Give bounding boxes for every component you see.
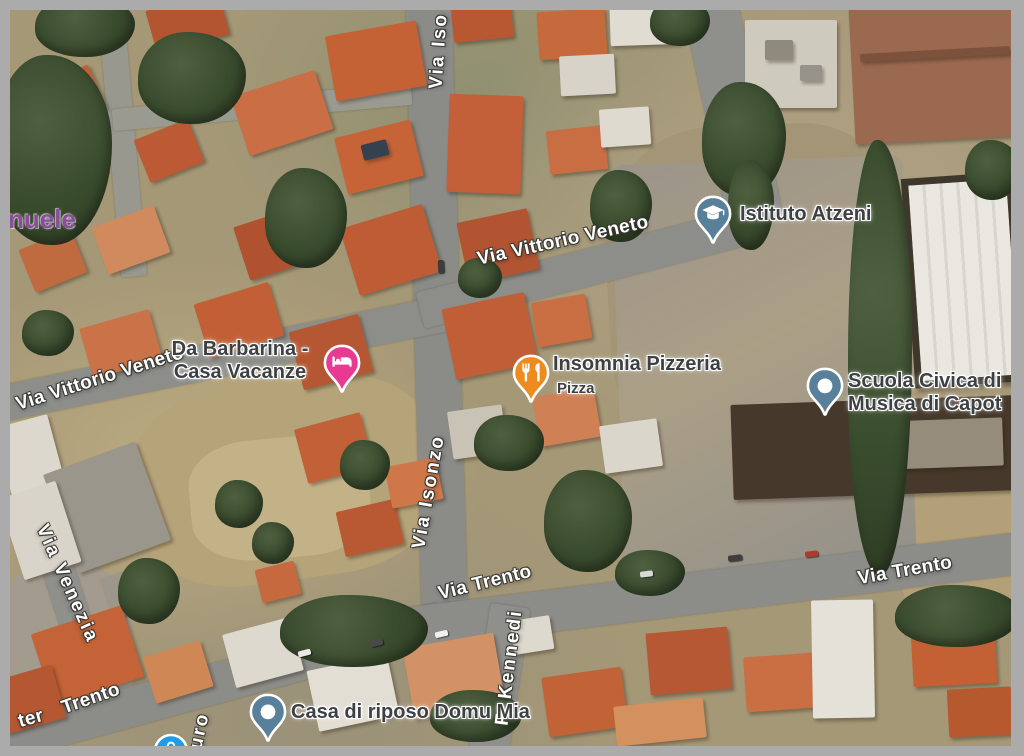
building-roof	[531, 294, 593, 348]
vegetation	[340, 440, 390, 490]
building-roof	[645, 627, 732, 696]
building-roof	[765, 40, 793, 60]
building-roof	[743, 653, 817, 713]
vegetation	[895, 585, 1011, 647]
building-roof	[450, 10, 514, 43]
screenshot-frame: { "map": { "frame_color": "#ababab", "ar…	[0, 0, 1024, 756]
building-roof	[91, 205, 170, 275]
area-label-partial-nuele: nuele	[10, 205, 76, 235]
poi-label-line2: Casa Vacanze	[160, 361, 320, 384]
building-roof	[559, 54, 616, 97]
vegetation	[965, 140, 1011, 200]
dot-icon	[818, 379, 833, 394]
vegetation	[22, 310, 74, 356]
vegetation	[215, 480, 263, 528]
building-roof	[599, 418, 663, 474]
partial-blue-poi-pin[interactable]	[153, 733, 189, 746]
vegetation	[118, 558, 180, 624]
satellite-map[interactable]: Via Iso Via Isonzo Via Vittorio Veneto V…	[10, 10, 1011, 746]
poi-label-casa-di-riposo[interactable]: Casa di riposo Domu Mia	[291, 701, 530, 724]
dot-icon	[261, 705, 276, 720]
building-roof	[446, 94, 523, 195]
building-roof	[536, 10, 607, 60]
poi-label-istituto-atzeni[interactable]: Istituto Atzeni	[740, 203, 871, 226]
poi-label-line1: Da Barbarina -	[160, 338, 320, 361]
vegetation	[252, 522, 294, 564]
building-roof	[133, 119, 204, 183]
poi-label-da-barbarina[interactable]: Da Barbarina - Casa Vacanze	[160, 338, 320, 384]
building-roof	[849, 10, 1011, 144]
lodging-pin[interactable]	[323, 344, 361, 394]
building-roof	[947, 686, 1011, 737]
vegetation	[474, 415, 544, 471]
poi-label-line2: Musica di Capot	[848, 393, 1001, 416]
generic-poi-pin[interactable]	[806, 367, 844, 417]
building-roof	[800, 65, 822, 81]
poi-label-scuola-civica[interactable]: Scuola Civica di Musica di Capot	[848, 370, 1001, 416]
poi-sublabel-pizza: Pizza	[557, 380, 595, 397]
poi-label-insomnia-pizzeria[interactable]: Insomnia Pizzeria	[553, 353, 721, 376]
building-roof	[811, 599, 875, 718]
school-pin[interactable]	[694, 195, 732, 245]
vehicle	[438, 260, 444, 273]
restaurant-pin[interactable]	[512, 354, 550, 404]
building-roof	[546, 125, 608, 175]
poi-label-line1: Scuola Civica di	[848, 370, 1001, 393]
vegetation	[544, 470, 632, 572]
building-roof	[231, 70, 334, 156]
vegetation	[138, 32, 246, 124]
warehouse-roof	[901, 171, 1011, 388]
vegetation	[265, 168, 347, 268]
building-roof	[613, 697, 707, 746]
generic-poi-pin[interactable]	[249, 693, 287, 743]
building-roof	[599, 106, 652, 147]
